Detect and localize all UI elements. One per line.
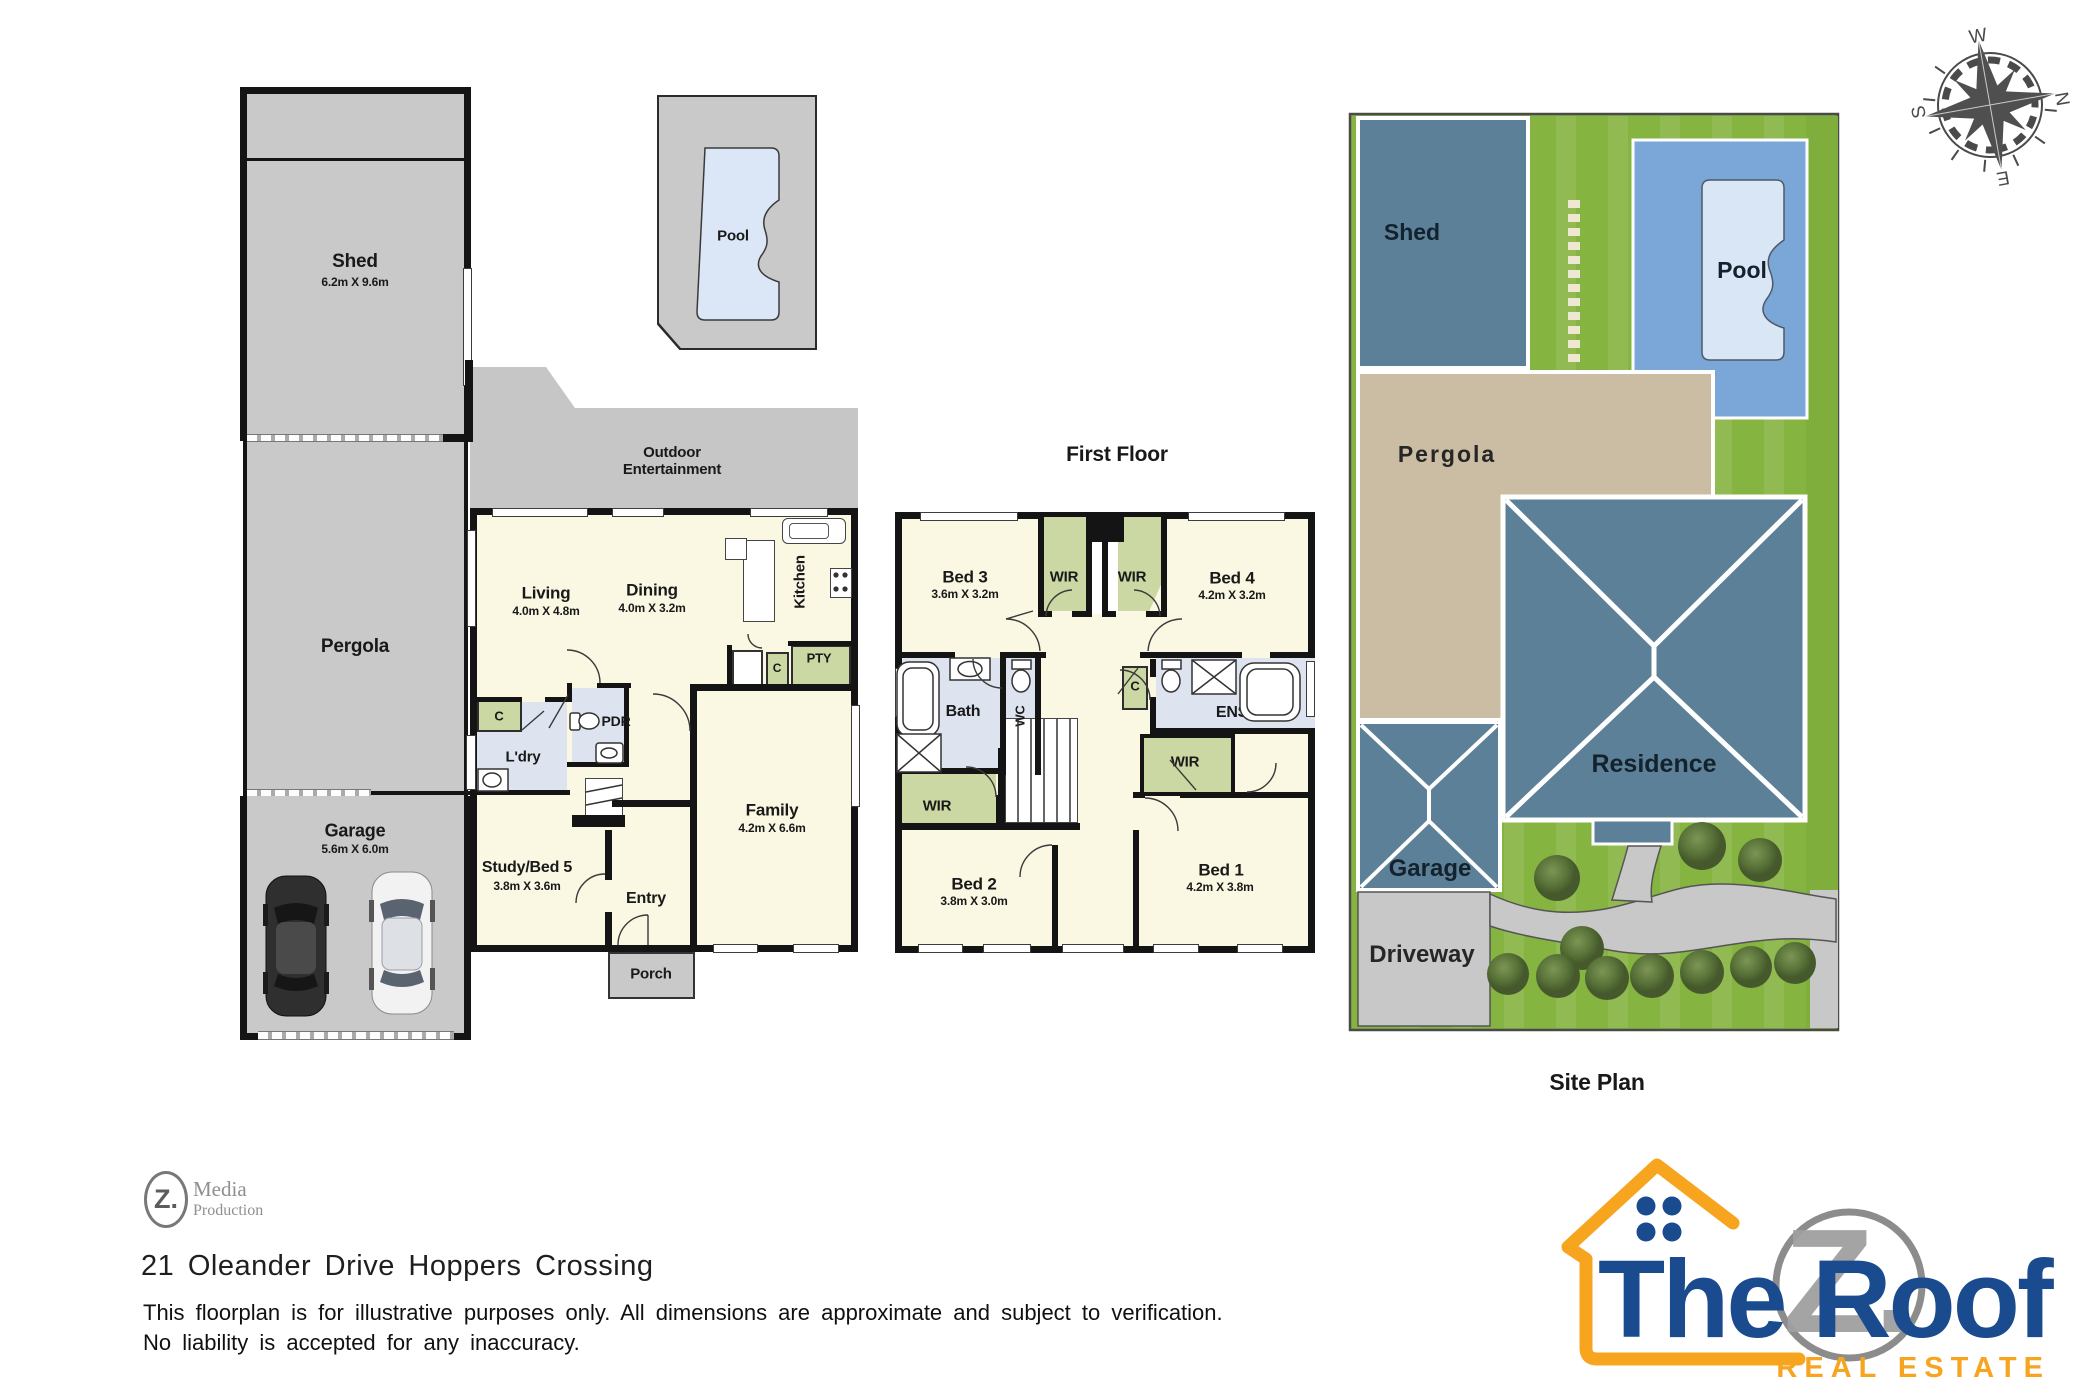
stair-treads-ff xyxy=(1018,719,1070,822)
compass-east: E xyxy=(1995,166,2011,189)
car-dark xyxy=(263,876,329,1016)
brand-tagline: REAL ESTATE xyxy=(1776,1352,2050,1384)
ground-floor-fixtures xyxy=(478,572,848,945)
site-plan-title: Site Plan xyxy=(1549,1069,1644,1095)
brand-logo: Z. The Roof REAL ESTATE xyxy=(1545,1145,2080,1390)
stove-burners xyxy=(833,572,847,591)
site-pergola-label: Pergola xyxy=(1398,441,1496,467)
window-dots-icon xyxy=(1637,1197,1682,1242)
compass-west: W xyxy=(1967,25,1988,49)
site-shed-label: Shed xyxy=(1384,219,1440,245)
media-logo-monogram: Z. xyxy=(154,1184,178,1215)
media-logo-line1: Media xyxy=(193,1177,247,1202)
media-logo-line2: Production xyxy=(193,1202,263,1220)
site-driveway-label: Driveway xyxy=(1369,941,1475,968)
pdr-toilet-bowl xyxy=(579,713,599,729)
floorplan-sheet: Shed 6.2m X 9.6m Pergola Garage 5.6m X 6… xyxy=(0,0,2100,1400)
site-plan: Shed Pool Pergola Residence Garage Drive… xyxy=(1348,112,1840,1034)
pdr-basin xyxy=(596,743,623,763)
ens-toilet-bowl xyxy=(1162,670,1180,692)
site-residence-label: Residence xyxy=(1591,750,1716,778)
car-white xyxy=(369,872,435,1014)
compass-star xyxy=(1914,29,2067,182)
compass-south: S xyxy=(1908,104,1931,120)
site-residence-porch xyxy=(1593,820,1672,844)
compass-north: N xyxy=(2050,91,2073,108)
address: 21 Oleander Drive Hoppers Crossing xyxy=(141,1250,654,1283)
site-pool-label: Pool xyxy=(1717,257,1767,283)
door-arcs-ff xyxy=(966,590,1276,877)
wc-toilet-tank xyxy=(1012,660,1031,669)
disclaimer-line2: No liability is accepted for any inaccur… xyxy=(143,1330,580,1356)
site-garage-label: Garage xyxy=(1389,855,1472,882)
brand-name: The Roof xyxy=(1598,1238,2054,1361)
first-floor-fixtures xyxy=(897,590,1300,877)
compass-rose: W N E S xyxy=(1900,15,2080,200)
stair-treads-gf xyxy=(586,785,622,805)
door-arcs-gf xyxy=(522,634,762,945)
ens-tub xyxy=(1240,663,1300,721)
ens-toilet-tank xyxy=(1162,660,1181,669)
media-logo-circle: Z. xyxy=(144,1171,188,1228)
disclaimer-line1: This floorplan is for illustrative purpo… xyxy=(143,1300,1223,1326)
wc-toilet-bowl xyxy=(1012,670,1030,692)
